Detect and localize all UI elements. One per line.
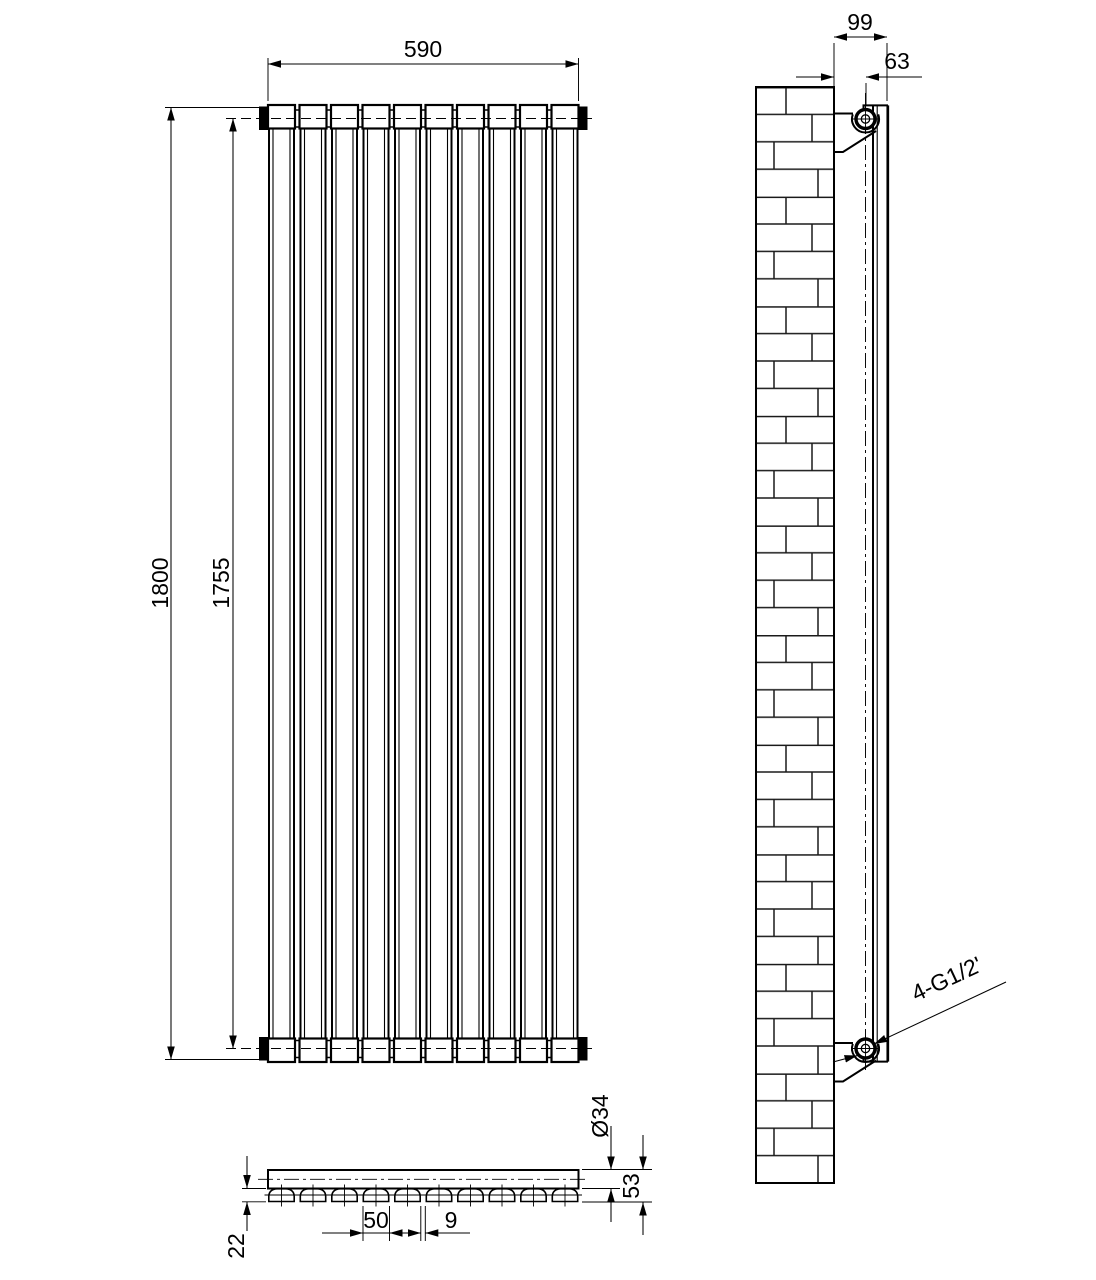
dim-tube-depth-label: 22 — [223, 1233, 249, 1259]
drawing-canvas: 590 1800 1755 99 63 — [0, 0, 1096, 1280]
dim-header-diameter-label: Ø34 — [587, 1094, 613, 1138]
brick-wall — [756, 87, 834, 1183]
dim-height-label: 1800 — [147, 557, 173, 608]
side-view: 99 63 4-G1/2' — [756, 9, 1006, 1183]
front-view: 590 1800 1755 — [147, 36, 592, 1062]
header-end-cap — [260, 107, 269, 130]
dim-wall-offset-label: 63 — [884, 48, 910, 74]
dim-depth-label: 99 — [847, 9, 873, 35]
header-end-cap — [579, 107, 588, 130]
connection-leader-arrow — [833, 1056, 858, 1063]
radiator-panels — [268, 105, 579, 1062]
radiator-technical-drawing: 590 1800 1755 99 63 — [0, 0, 1096, 1280]
radiator-side-profile — [864, 105, 889, 1061]
dim-tube-width-label: 50 — [363, 1207, 389, 1233]
dim-total-depth-label: 53 — [618, 1173, 644, 1199]
connection-thread-label: 4-G1/2' — [907, 951, 986, 1006]
header-end-cap — [579, 1038, 588, 1061]
dim-inner-height-label: 1755 — [208, 557, 234, 608]
dim-width-label: 590 — [404, 36, 442, 62]
header-end-cap — [260, 1038, 269, 1061]
section-view: 22 50 9 Ø34 53 — [223, 1094, 652, 1259]
dim-tube-gap-label: 9 — [445, 1207, 458, 1233]
